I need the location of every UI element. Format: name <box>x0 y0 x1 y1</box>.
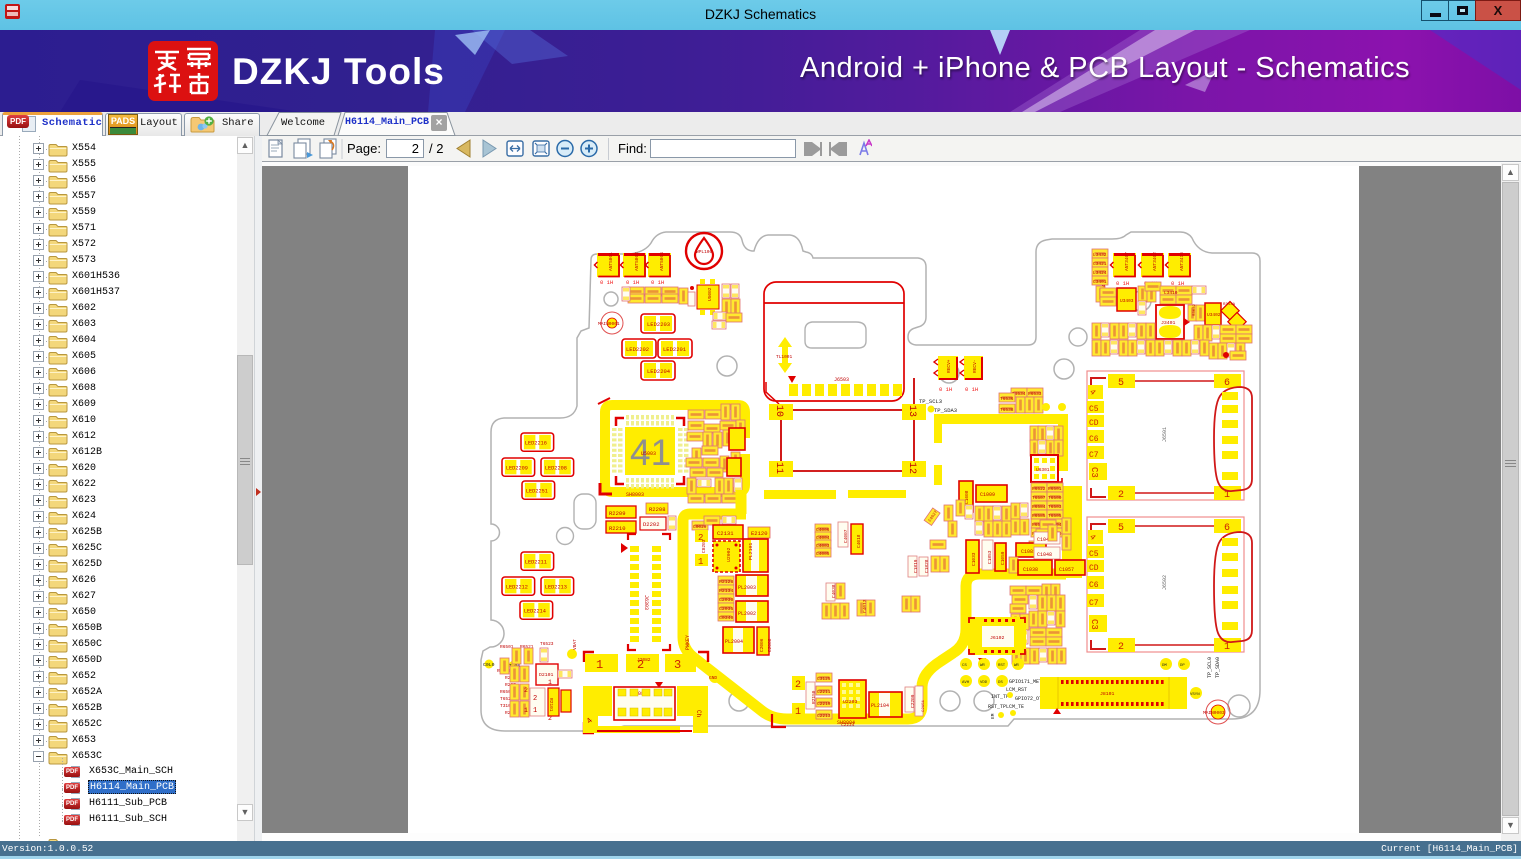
svg-text:0 1H: 0 1H <box>965 386 978 393</box>
svg-text:C2030: C2030 <box>719 597 734 603</box>
svg-text:LED2202: LED2202 <box>626 346 649 353</box>
svg-text:J6102: J6102 <box>990 635 1005 641</box>
svg-text:J6503: J6503 <box>834 377 849 383</box>
svg-text:R343A: R343A <box>1223 303 1236 307</box>
svg-text:T6507: T6507 <box>1032 495 1046 501</box>
svg-text:C3401: C3401 <box>1093 279 1107 285</box>
svg-text:D2202: D2202 <box>643 521 660 528</box>
svg-text:VDD: VDD <box>980 681 988 685</box>
svg-text:L3410: L3410 <box>1164 290 1178 296</box>
svg-text:0 1H: 0 1H <box>651 279 664 286</box>
svg-text:LED2209: LED2209 <box>506 466 528 472</box>
svg-text:1: 1 <box>698 557 703 567</box>
svg-text:CD: CD <box>1089 419 1099 428</box>
svg-text:LCM_TE: LCM_TE <box>1006 704 1024 710</box>
svg-text:LED2204: LED2204 <box>647 368 671 375</box>
svg-text:WR: WR <box>980 664 985 668</box>
svg-text:LED2211: LED2211 <box>525 560 547 566</box>
svg-text:DS: DS <box>998 681 1003 685</box>
svg-text:U5002: U5002 <box>707 287 713 301</box>
svg-text:C7: C7 <box>1089 599 1099 608</box>
svg-text:C1828: C1828 <box>924 559 930 573</box>
svg-text:U3402: U3402 <box>1207 312 1221 318</box>
svg-text:DM: DM <box>1162 664 1167 668</box>
svg-text:0 1H: 0 1H <box>626 279 639 286</box>
svg-text:5: 5 <box>1118 523 1124 534</box>
svg-text:ANT5004: ANT5004 <box>659 252 665 271</box>
svg-text:12: 12 <box>906 462 917 474</box>
svg-text:C2224: C2224 <box>841 722 855 728</box>
svg-text:TP_SDA0: TP_SDA0 <box>1215 657 1221 678</box>
svg-text:5: 5 <box>1118 378 1124 389</box>
svg-text:C0203: C0203 <box>701 539 707 553</box>
svg-text:PWKEY: PWKEY <box>685 635 691 650</box>
svg-text:TP_SDA3: TP_SDA3 <box>934 407 957 414</box>
svg-text:0 1H: 0 1H <box>600 279 613 286</box>
svg-text:C1009: C1009 <box>980 492 995 498</box>
svg-text:C6: C6 <box>1089 435 1099 444</box>
svg-text:C2211: C2211 <box>817 689 831 695</box>
svg-text:T6523: T6523 <box>540 641 554 647</box>
svg-text:C2151: C2151 <box>922 699 926 712</box>
svg-text:C1057: C1057 <box>1059 567 1074 573</box>
svg-text:C2035: C2035 <box>719 606 734 612</box>
svg-text:C3421: C3421 <box>1093 261 1107 267</box>
svg-text:D2101: D2101 <box>539 672 554 678</box>
svg-text:J8101: J8101 <box>1100 691 1115 697</box>
svg-text:J6303: J6303 <box>643 595 649 610</box>
svg-text:U5003: U5003 <box>641 451 656 457</box>
svg-text:RST: RST <box>998 664 1006 668</box>
svg-text:INT_TP: INT_TP <box>991 694 1009 700</box>
svg-text:2: 2 <box>533 695 537 703</box>
svg-text:ANT3402: ANT3402 <box>1152 252 1158 271</box>
svg-text:C3125: C3125 <box>817 676 831 682</box>
svg-text:13: 13 <box>906 405 917 417</box>
svg-text:CS: CS <box>962 664 967 668</box>
svg-text:GND: GND <box>709 675 717 681</box>
svg-text:6: 6 <box>1224 378 1230 389</box>
svg-text:C1059: C1059 <box>1000 551 1006 565</box>
svg-text:RST_TP: RST_TP <box>988 704 1006 710</box>
svg-text:C1038: C1038 <box>1023 567 1038 573</box>
svg-text:PL2003: PL2003 <box>738 585 756 591</box>
svg-text:T6505: T6505 <box>1048 513 1062 519</box>
svg-text:1: 1 <box>1224 642 1230 653</box>
svg-text:R2209: R2209 <box>609 510 626 517</box>
svg-text:E2120: E2120 <box>751 530 768 537</box>
svg-text:R2128: R2128 <box>719 579 734 585</box>
svg-text:LED2213: LED2213 <box>545 585 567 591</box>
svg-text:J6501: J6501 <box>1162 427 1168 442</box>
svg-text:LCM_RST: LCM_RST <box>1006 687 1027 693</box>
svg-text:PL2004: PL2004 <box>725 639 743 645</box>
svg-text:C2006: C2006 <box>759 638 765 652</box>
svg-text:C4005: C4005 <box>816 551 830 557</box>
svg-text:C0L0: C0L0 <box>483 662 495 668</box>
svg-text:C2219: C2219 <box>817 701 831 707</box>
svg-text:R6533: R6533 <box>1028 391 1042 397</box>
svg-text:LED2251: LED2251 <box>526 489 548 495</box>
svg-text:SH8003: SH8003 <box>626 492 644 498</box>
svg-text:PL2104: PL2104 <box>871 703 889 709</box>
svg-text:Ch: Ch <box>695 710 702 718</box>
svg-text:C3: C3 <box>1089 619 1099 630</box>
svg-text:J6502: J6502 <box>1162 575 1168 590</box>
svg-text:C3: C3 <box>1089 467 1099 478</box>
svg-text:2: 2 <box>548 715 552 722</box>
svg-text:1: 1 <box>795 707 801 718</box>
svg-text:LED2201: LED2201 <box>663 346 687 353</box>
svg-text:LED2212: LED2212 <box>506 585 528 591</box>
svg-text:U2002: U2002 <box>726 547 732 562</box>
svg-text:WPL100: WPL100 <box>696 249 713 255</box>
svg-text:10: 10 <box>773 405 784 417</box>
svg-text:11: 11 <box>773 462 784 474</box>
svg-text:C1048: C1048 <box>1037 552 1052 558</box>
svg-text:R6584: R6584 <box>1032 504 1046 510</box>
svg-text:R2208: R2208 <box>649 506 666 513</box>
svg-text:C1033: C1033 <box>971 552 977 566</box>
svg-text:R6585: R6585 <box>1032 513 1046 519</box>
svg-text:TL1001: TL1001 <box>776 354 793 360</box>
svg-text:VSYN: VSYN <box>1190 693 1200 697</box>
svg-text:RECV-: RECV- <box>972 359 978 373</box>
svg-text:LED2203: LED2203 <box>647 321 670 328</box>
svg-text:MAIN0003: MAIN0003 <box>1203 710 1225 716</box>
svg-text:ANT3407: ANT3407 <box>1124 252 1130 271</box>
svg-text:C0340: C0340 <box>719 615 734 621</box>
svg-text:1: 1 <box>524 707 528 714</box>
svg-text:L3432: L3432 <box>1093 252 1107 258</box>
svg-text:PL2101: PL2101 <box>748 543 754 560</box>
svg-text:C7: C7 <box>1089 451 1099 460</box>
svg-text:1: 1 <box>596 658 603 672</box>
svg-text:3: 3 <box>674 658 681 672</box>
svg-text:EM: EM <box>990 713 996 719</box>
svg-text:CD: CD <box>1089 564 1099 573</box>
svg-text:C5: C5 <box>1089 405 1099 414</box>
svg-text:C2008: C2008 <box>767 638 773 652</box>
svg-text:TP_SCL3: TP_SCL3 <box>919 398 942 405</box>
svg-text:C2213: C2213 <box>817 713 831 719</box>
svg-text:U6301: U6301 <box>1036 467 1050 473</box>
svg-text:VBAT: VBAT <box>572 639 578 650</box>
svg-text:LED2216: LED2216 <box>525 441 547 447</box>
svg-text:C1853: C1853 <box>987 550 993 564</box>
svg-text:ANT5001: ANT5001 <box>608 252 614 271</box>
svg-text:R6501: R6501 <box>1048 486 1062 492</box>
svg-text:2: 2 <box>1118 642 1124 653</box>
svg-text:U3403: U3403 <box>1120 298 1134 304</box>
svg-text:2: 2 <box>524 687 528 694</box>
svg-text:2: 2 <box>795 680 801 691</box>
svg-text:J3401: J3401 <box>1161 320 1176 326</box>
svg-text:MAIN0001: MAIN0001 <box>598 321 620 327</box>
svg-text:6: 6 <box>1224 523 1230 534</box>
svg-text:R2134: R2134 <box>719 588 734 594</box>
svg-text:T6536: T6536 <box>1000 396 1014 402</box>
svg-text:C6: C6 <box>1089 581 1099 590</box>
svg-text:J2082: J2082 <box>637 657 651 663</box>
svg-text:R6522: R6522 <box>1032 486 1046 492</box>
svg-text:DP: DP <box>1180 664 1185 668</box>
svg-text:1: 1 <box>548 679 552 686</box>
svg-text:C1819: C1819 <box>913 559 919 573</box>
svg-text:PL2002: PL2002 <box>738 611 756 617</box>
svg-text:RECV+: RECV+ <box>946 359 952 373</box>
svg-text:AVH: AVH <box>962 681 970 685</box>
svg-text:C5: C5 <box>1089 550 1099 559</box>
svg-text:GPIO171_META: GPIO171_META <box>1009 679 1045 685</box>
svg-text:U2203: U2203 <box>843 699 858 705</box>
svg-text:L3424: L3424 <box>1093 270 1107 276</box>
svg-text:0 1H: 0 1H <box>939 386 952 393</box>
svg-text:T6503: T6503 <box>1048 504 1062 510</box>
svg-text:2: 2 <box>1118 490 1124 501</box>
svg-text:ANT5002: ANT5002 <box>634 252 640 271</box>
svg-text:LED2214: LED2214 <box>524 609 546 615</box>
svg-text:T6538: T6538 <box>1000 407 1014 413</box>
svg-text:C2131: C2131 <box>717 530 734 537</box>
svg-text:C4018: C4018 <box>856 534 862 548</box>
svg-text:0 1H: 0 1H <box>1116 280 1129 287</box>
svg-text:TP_SCL0: TP_SCL0 <box>1207 657 1213 678</box>
svg-text:LED2208: LED2208 <box>545 466 567 472</box>
svg-text:R2101: R2101 <box>548 698 554 712</box>
svg-text:WR: WR <box>1014 664 1019 668</box>
svg-text:T6500: T6500 <box>1048 495 1062 501</box>
svg-text:ANT3416: ANT3416 <box>1179 252 1185 271</box>
svg-text:R2210: R2210 <box>609 525 626 532</box>
svg-text:1: 1 <box>533 707 537 715</box>
svg-text:C4007: C4007 <box>843 529 849 543</box>
